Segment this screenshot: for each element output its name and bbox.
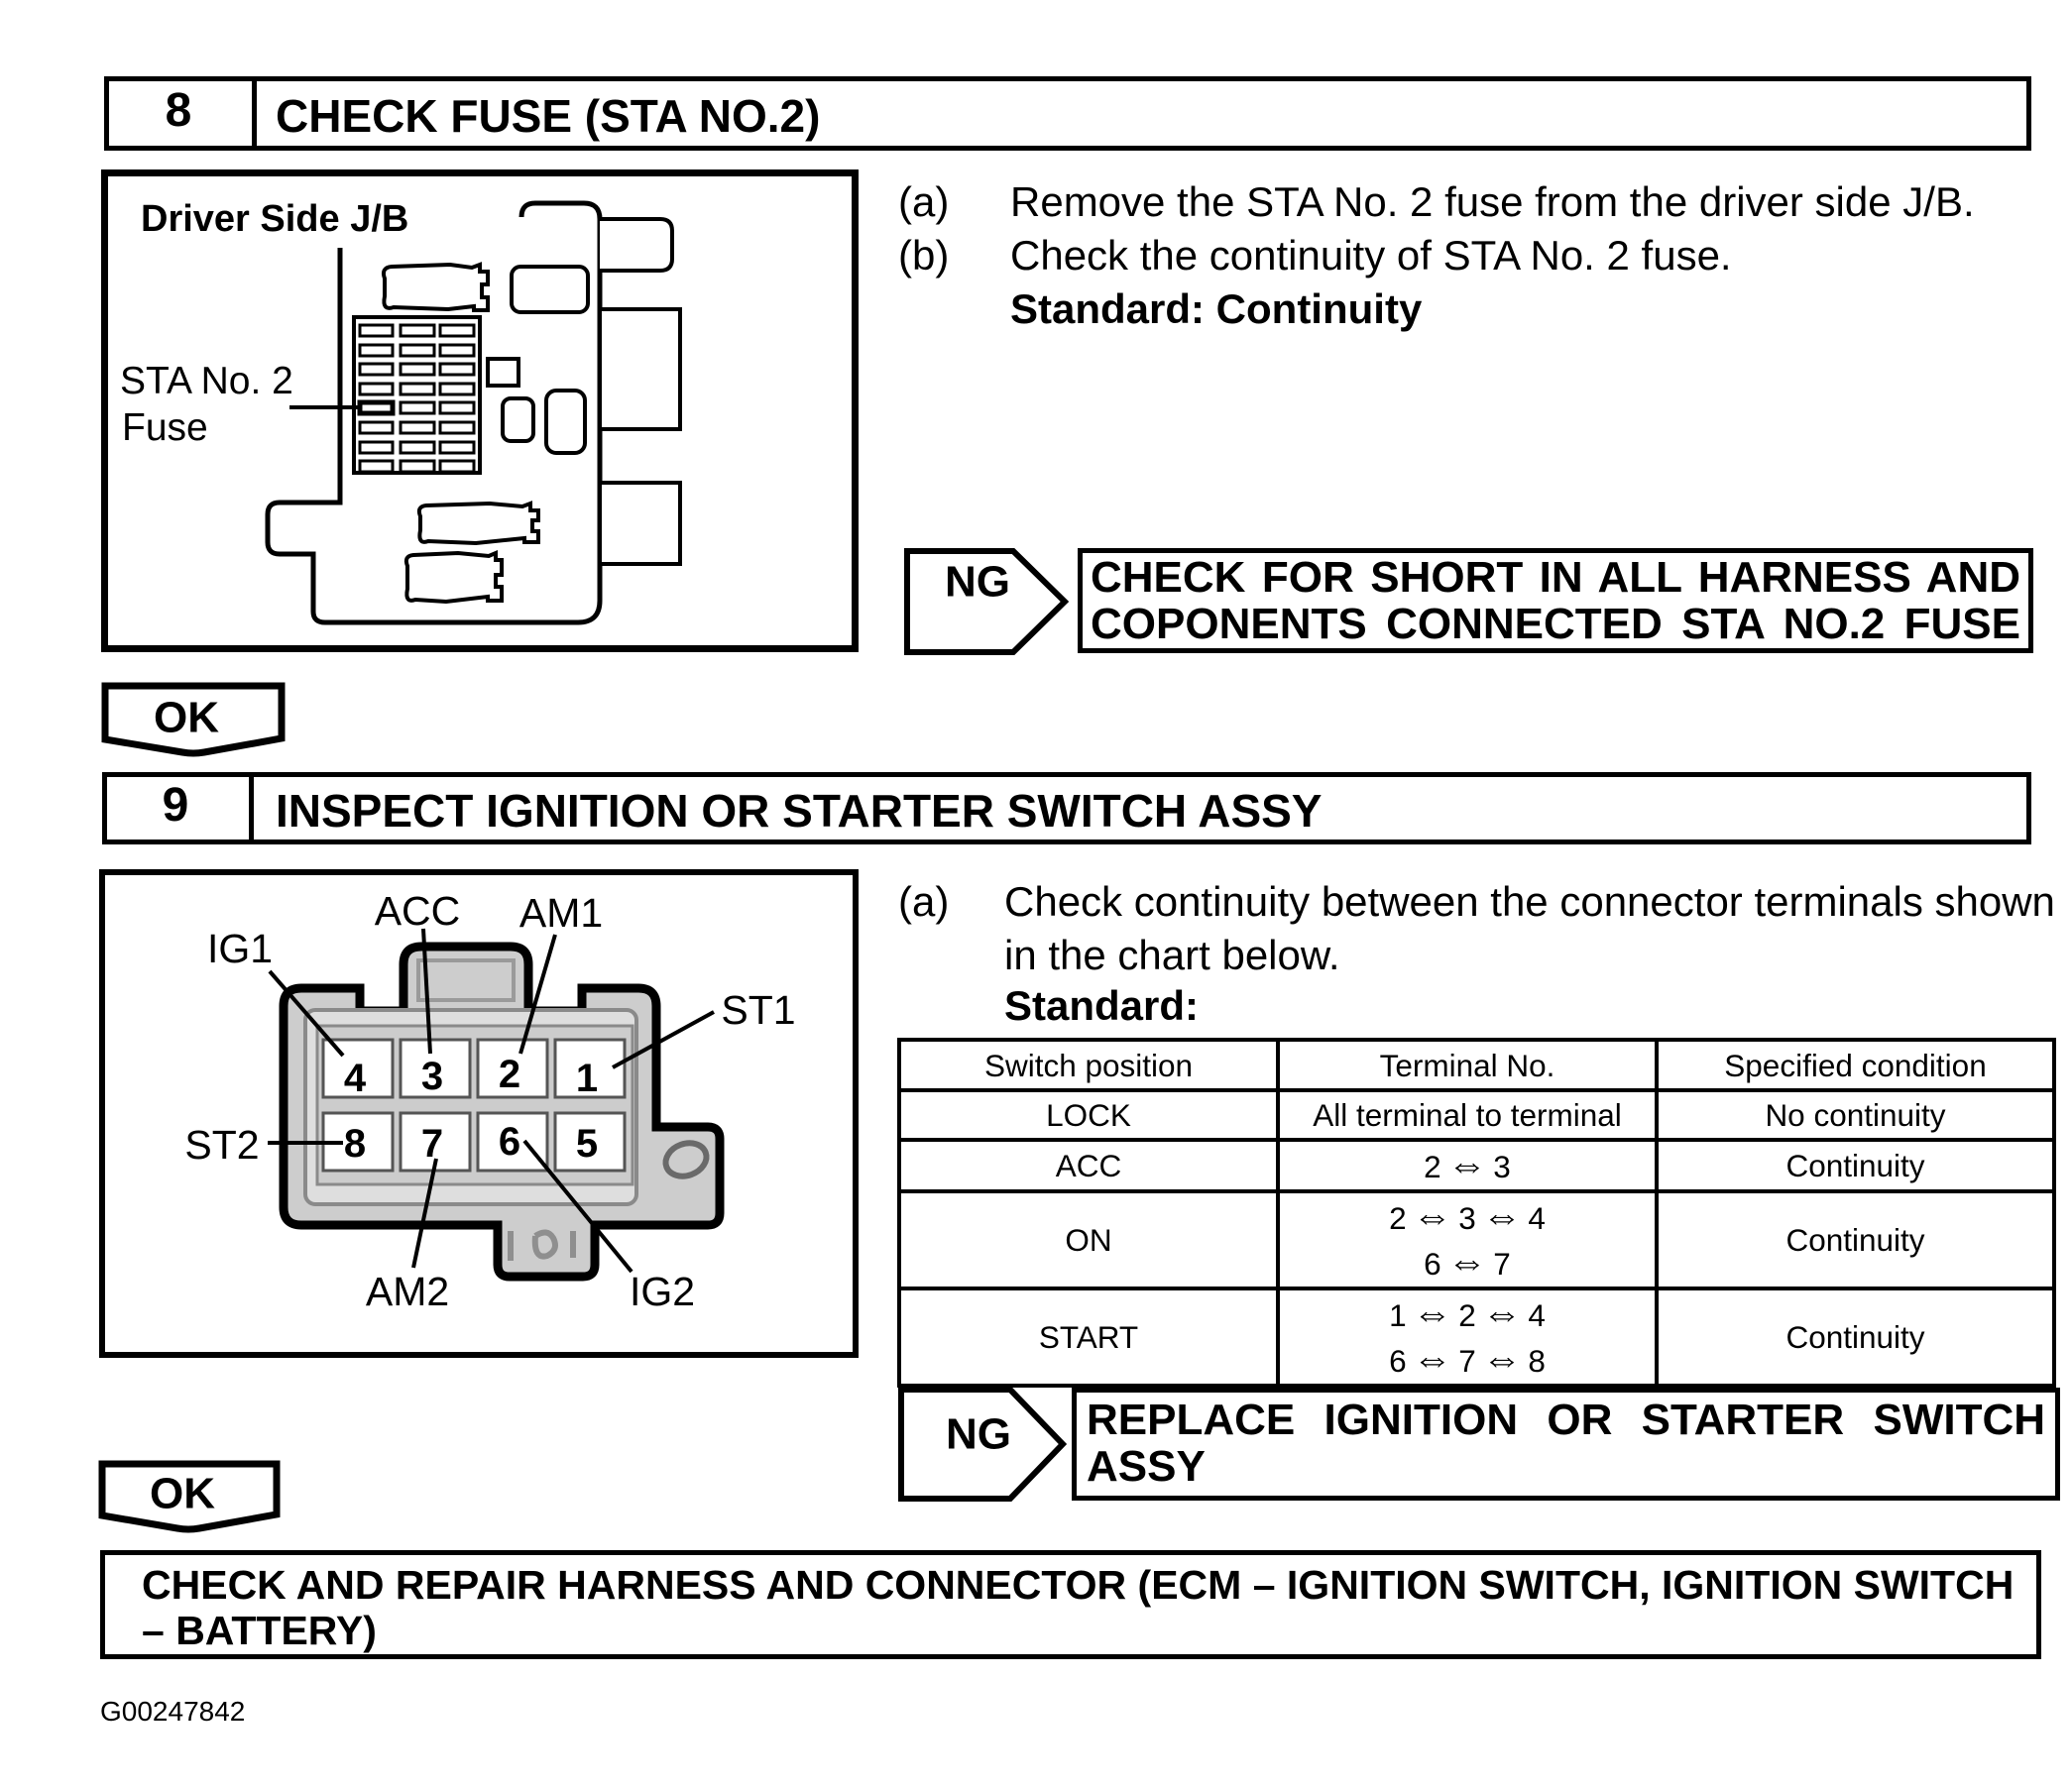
svg-text:ST1: ST1	[721, 987, 795, 1033]
svg-text:NG: NG	[946, 1410, 1011, 1459]
svg-text:2: 2	[499, 1053, 520, 1096]
svg-text:OK: OK	[154, 694, 219, 742]
svg-text:STA No. 2: STA No. 2	[120, 360, 293, 402]
svg-text:Driver Side J/B: Driver Side J/B	[141, 198, 408, 240]
svg-text:7: 7	[421, 1122, 443, 1166]
svg-text:AM2: AM2	[366, 1269, 449, 1314]
svg-text:IG1: IG1	[207, 926, 273, 971]
svg-text:ACC: ACC	[375, 888, 461, 934]
svg-text:4: 4	[344, 1057, 367, 1100]
svg-text:3: 3	[421, 1055, 443, 1098]
svg-text:6: 6	[499, 1120, 520, 1164]
svg-text:OK: OK	[150, 1470, 215, 1518]
svg-text:ST2: ST2	[184, 1122, 259, 1168]
svg-text:8: 8	[344, 1122, 366, 1166]
svg-text:5: 5	[576, 1122, 598, 1166]
svg-text:Fuse: Fuse	[122, 406, 208, 449]
svg-text:IG2: IG2	[630, 1269, 695, 1314]
svg-text:NG: NG	[945, 558, 1010, 607]
svg-text:AM1: AM1	[519, 890, 603, 936]
svg-text:1: 1	[576, 1057, 598, 1100]
